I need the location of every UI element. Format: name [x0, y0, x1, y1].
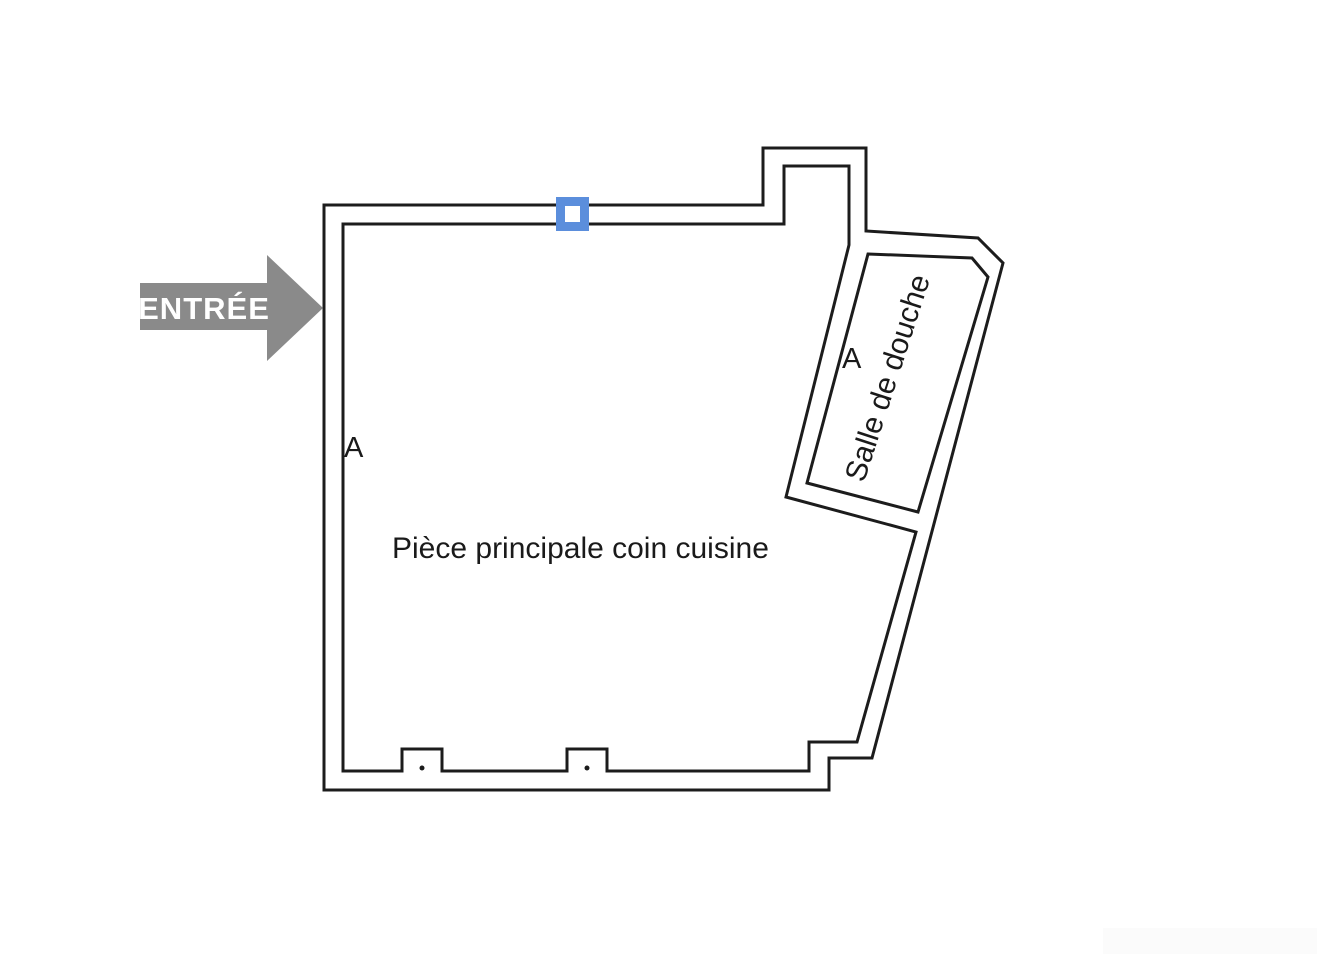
floor-plan-drawing: ENTRÉE Pièce principale coin cuisine A A… — [0, 0, 1320, 956]
floor-plan-page: ENTRÉE Pièce principale coin cuisine A A… — [0, 0, 1320, 956]
outer-wall-path — [324, 148, 1003, 790]
section-label-a-shower: A — [842, 343, 862, 375]
blue-square-marker[interactable] — [556, 197, 589, 231]
main-room-label: Pièce principale coin cuisine — [392, 532, 769, 565]
main-room-wall-path — [343, 166, 916, 771]
notch-dot-right — [585, 766, 590, 771]
section-label-a-left-wall: A — [344, 432, 364, 464]
notch-dot-left — [420, 766, 425, 771]
entry-arrow-label: ENTRÉE — [138, 291, 270, 326]
blue-square-marker-inner — [565, 206, 580, 222]
entry-arrow: ENTRÉE — [138, 255, 323, 361]
watermark-remnant — [1103, 928, 1317, 954]
